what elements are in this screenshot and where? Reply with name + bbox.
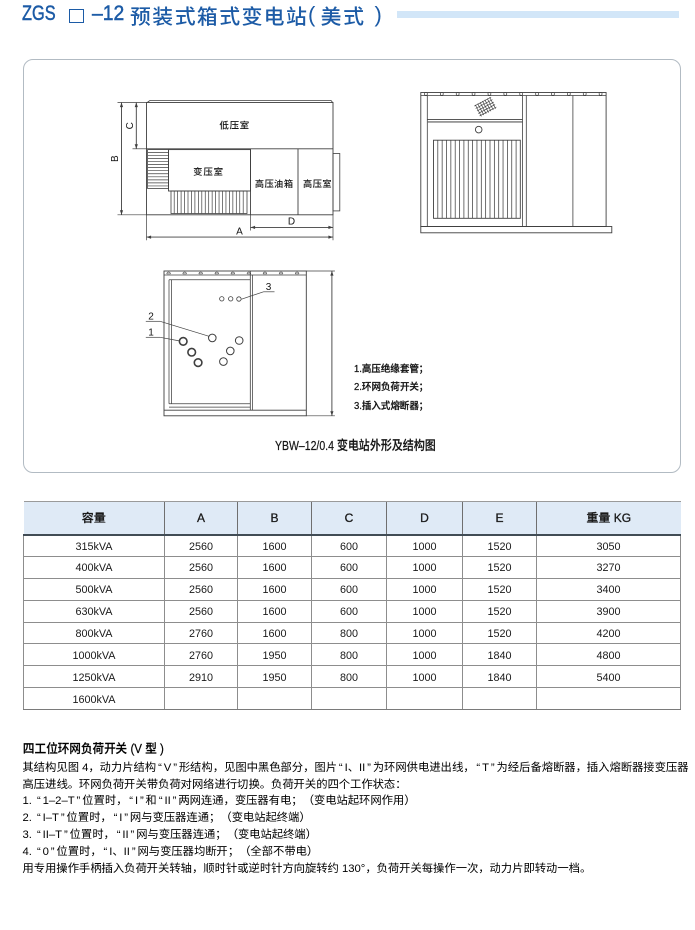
svg-text:低压室: 低压室 [218, 118, 250, 132]
svg-text:C: C [121, 122, 136, 129]
svg-text:高压室: 高压室 [303, 176, 332, 190]
svg-text:2: 2 [148, 308, 154, 323]
svg-text:变压室: 变压室 [193, 164, 224, 178]
svg-text:B: B [106, 155, 121, 162]
svg-text:D: D [288, 212, 296, 227]
svg-text:3: 3 [266, 278, 272, 293]
svg-text:A: A [236, 223, 244, 238]
svg-text:高压油箱: 高压油箱 [255, 176, 294, 190]
svg-text:1: 1 [148, 324, 154, 339]
